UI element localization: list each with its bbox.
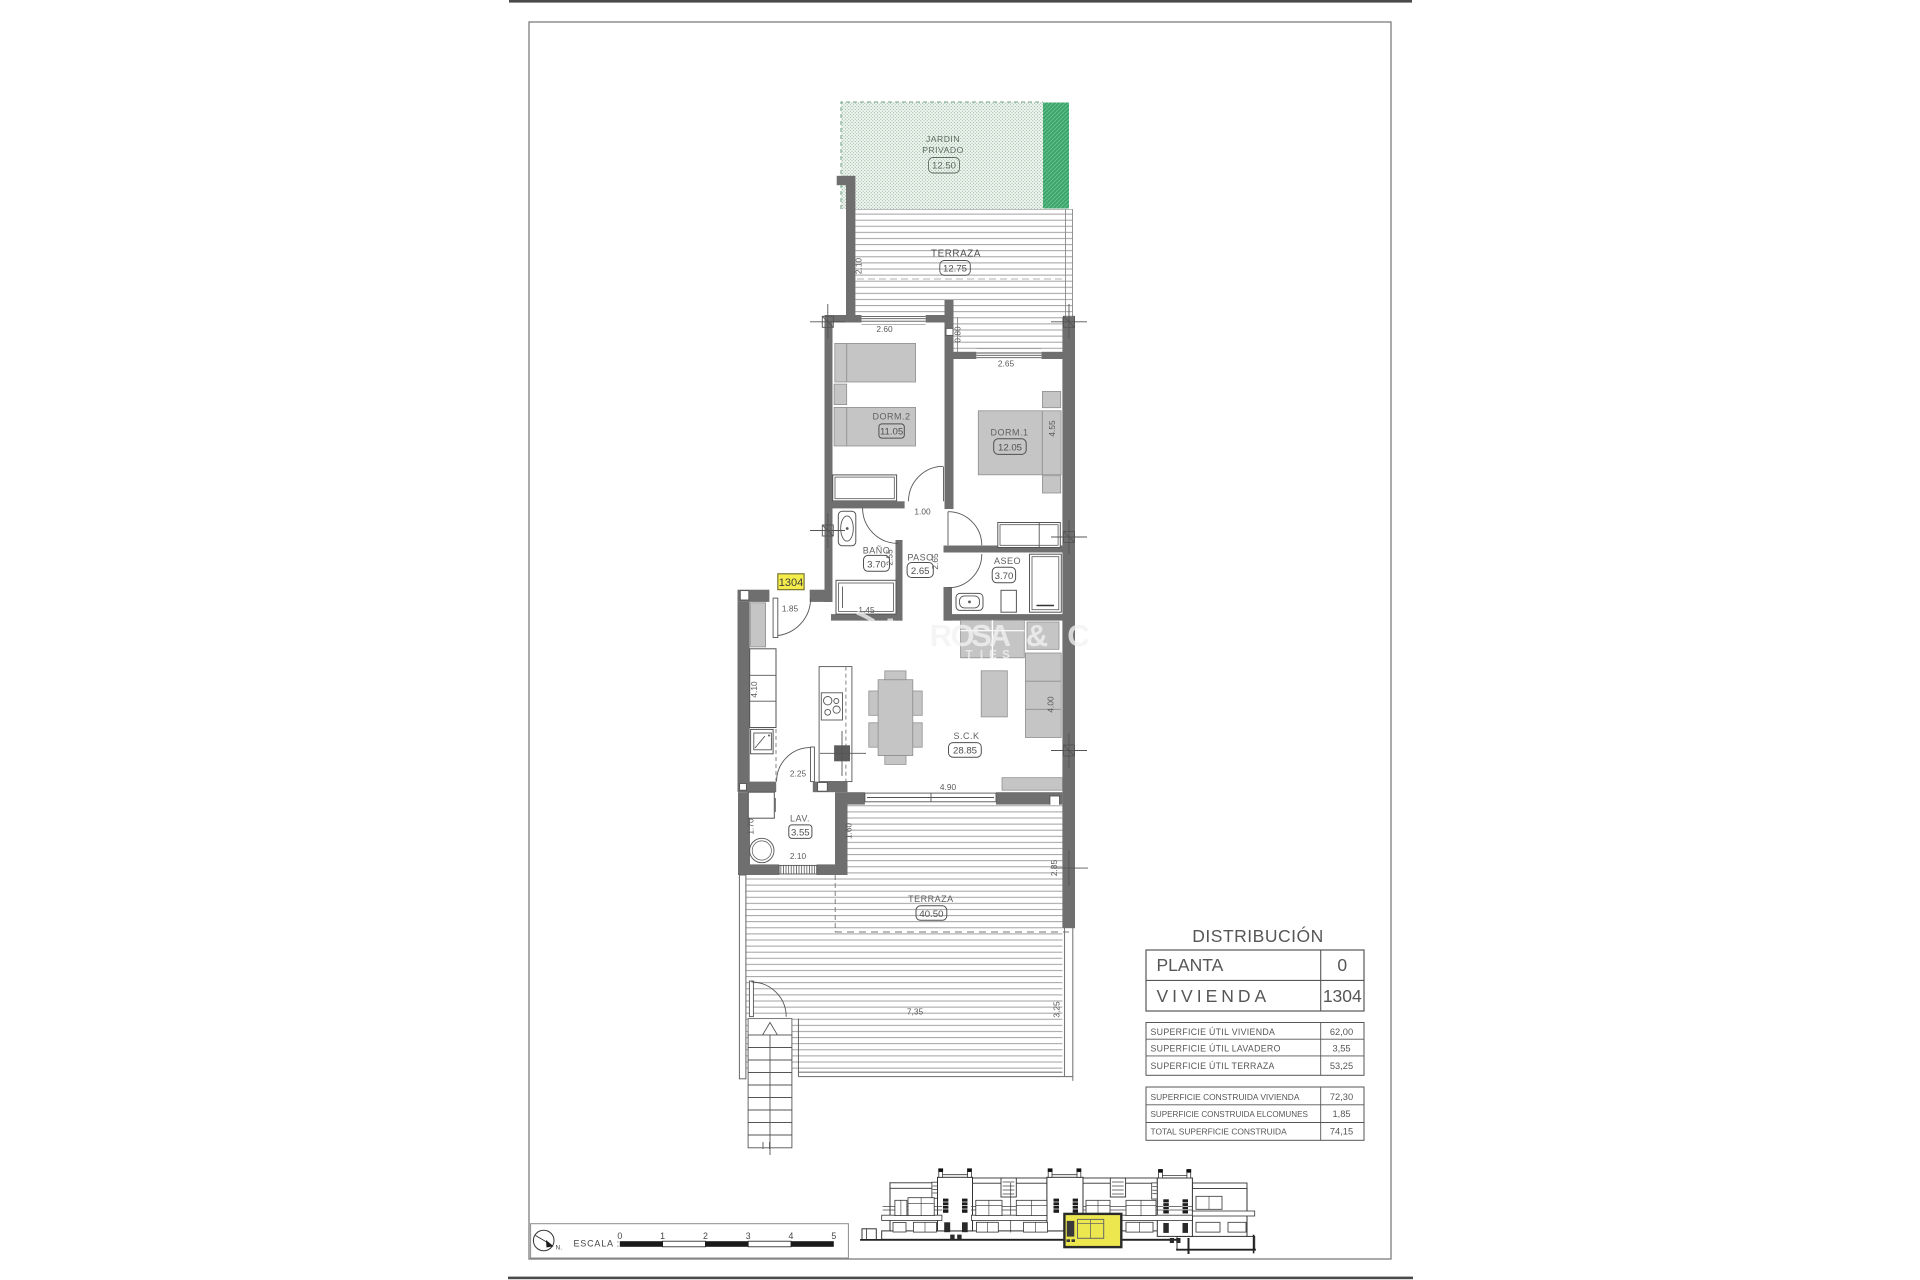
svg-text:N.: N. xyxy=(556,1245,563,1252)
svg-text:1: 1 xyxy=(660,1231,665,1241)
svg-text:DORM.1: DORM.1 xyxy=(990,428,1028,438)
svg-text:40.50: 40.50 xyxy=(919,909,943,920)
svg-text:12.75: 12.75 xyxy=(943,264,967,275)
svg-text:SUPERFICIE ÚTIL LAVADERO: SUPERFICIE ÚTIL LAVADERO xyxy=(1151,1044,1281,1054)
svg-text:4.90: 4.90 xyxy=(940,782,957,792)
svg-text:2.60: 2.60 xyxy=(876,324,893,334)
svg-text:12.50: 12.50 xyxy=(932,161,956,172)
svg-text:DISTRIBUCIÓN: DISTRIBUCIÓN xyxy=(1192,925,1323,946)
svg-text:LAV.: LAV. xyxy=(790,814,810,824)
svg-text:JARDIN: JARDIN xyxy=(926,134,960,144)
svg-text:T: T xyxy=(965,650,972,662)
svg-text:1304: 1304 xyxy=(779,577,803,589)
svg-text:2.65: 2.65 xyxy=(998,359,1015,369)
svg-text:I: I xyxy=(980,650,983,662)
svg-text:3.70: 3.70 xyxy=(867,559,886,570)
svg-text:74,15: 74,15 xyxy=(1330,1127,1353,1137)
svg-text:A: A xyxy=(989,618,1011,653)
svg-text:0: 0 xyxy=(1337,955,1347,975)
svg-text:S: S xyxy=(1002,650,1010,662)
svg-text:2.10: 2.10 xyxy=(790,851,807,861)
svg-text:2.55: 2.55 xyxy=(885,549,895,566)
svg-text:53,25: 53,25 xyxy=(1330,1061,1353,1071)
svg-text:0.80: 0.80 xyxy=(953,326,963,343)
svg-text:1.60: 1.60 xyxy=(844,823,854,840)
svg-text:2.25: 2.25 xyxy=(790,769,807,779)
svg-text:1.00: 1.00 xyxy=(914,507,931,517)
svg-text:62,00: 62,00 xyxy=(1330,1027,1353,1037)
svg-text:C: C xyxy=(1067,618,1089,653)
svg-text:TOTAL SUPERFICIE CONSTRUIDA: TOTAL SUPERFICIE CONSTRUIDA xyxy=(1151,1127,1288,1137)
svg-text:PLANTA: PLANTA xyxy=(1157,955,1224,975)
svg-text:3.70: 3.70 xyxy=(995,571,1014,582)
svg-text:SUPERFICIE CONSTRUIDA VIVIENDA: SUPERFICIE CONSTRUIDA VIVIENDA xyxy=(1151,1092,1300,1102)
svg-text:3: 3 xyxy=(746,1231,751,1241)
svg-text:12.05: 12.05 xyxy=(998,442,1022,453)
svg-text:E: E xyxy=(989,650,997,662)
svg-text:SUPERFICIE ÚTIL TERRAZA: SUPERFICIE ÚTIL TERRAZA xyxy=(1151,1061,1275,1071)
svg-text:72,30: 72,30 xyxy=(1330,1092,1353,1102)
svg-text:4.10: 4.10 xyxy=(749,681,759,698)
svg-text:2: 2 xyxy=(703,1231,708,1241)
svg-text:VIVIENDA: VIVIENDA xyxy=(1157,986,1271,1006)
svg-text:SUPERFICIE CONSTRUIDA ELCOMUNE: SUPERFICIE CONSTRUIDA ELCOMUNES xyxy=(1151,1110,1309,1119)
svg-text:3.55: 3.55 xyxy=(791,827,810,838)
svg-text:TERRAZA: TERRAZA xyxy=(931,249,981,260)
svg-text:S.C.K: S.C.K xyxy=(953,731,979,741)
svg-text:1.70: 1.70 xyxy=(746,818,756,835)
svg-text:1,85: 1,85 xyxy=(1332,1109,1350,1119)
svg-text:4.55: 4.55 xyxy=(1047,420,1057,437)
svg-text:TERRAZA: TERRAZA xyxy=(908,894,954,904)
svg-text:1.85: 1.85 xyxy=(782,604,799,614)
svg-text:ASEO: ASEO xyxy=(994,556,1021,566)
svg-text:4: 4 xyxy=(789,1231,794,1241)
svg-text:&: & xyxy=(1026,618,1048,653)
svg-text:SUPERFICIE ÚTIL VIVIENDA: SUPERFICIE ÚTIL VIVIENDA xyxy=(1151,1027,1276,1037)
svg-text:1304: 1304 xyxy=(1323,986,1362,1006)
svg-text:2.65: 2.65 xyxy=(911,566,930,577)
svg-text:2.65: 2.65 xyxy=(930,553,940,570)
svg-text:ESCALA :: ESCALA : xyxy=(574,1239,620,1249)
svg-text:7,35: 7,35 xyxy=(907,1007,924,1017)
svg-text:0: 0 xyxy=(617,1231,622,1241)
svg-text:28.85: 28.85 xyxy=(953,746,977,757)
svg-text:R: R xyxy=(930,618,952,653)
svg-text:3,25: 3,25 xyxy=(1052,1001,1062,1018)
svg-text:4.00: 4.00 xyxy=(1046,696,1056,713)
svg-text:3,55: 3,55 xyxy=(1332,1044,1350,1054)
svg-text:DORM.2: DORM.2 xyxy=(872,412,910,422)
svg-text:11.05: 11.05 xyxy=(880,427,903,438)
svg-text:PRIVADO: PRIVADO xyxy=(922,145,964,155)
svg-text:5: 5 xyxy=(831,1231,836,1241)
